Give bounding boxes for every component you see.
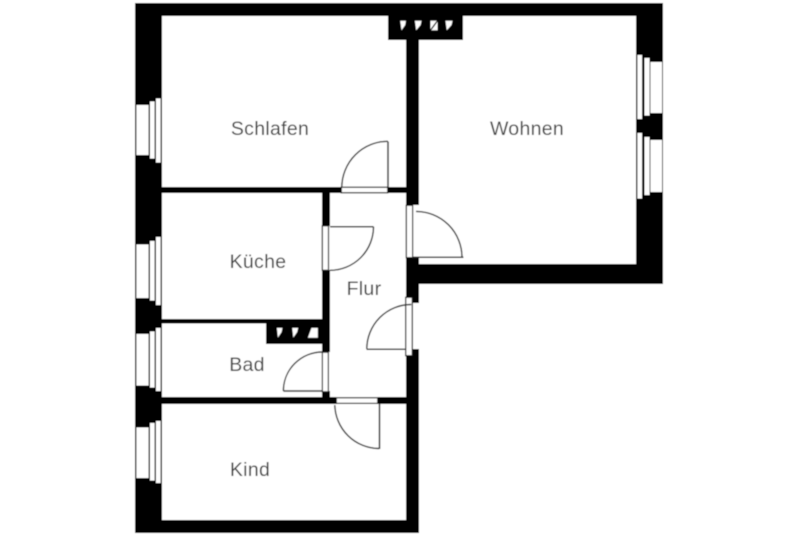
svg-text:Bad: Bad — [229, 354, 265, 376]
svg-text:Schlafen: Schlafen — [231, 118, 309, 140]
svg-text:Flur: Flur — [347, 278, 382, 300]
svg-text:Küche: Küche — [230, 251, 287, 273]
svg-text:Wohnen: Wohnen — [490, 118, 564, 140]
svg-text:Kind: Kind — [230, 459, 270, 481]
